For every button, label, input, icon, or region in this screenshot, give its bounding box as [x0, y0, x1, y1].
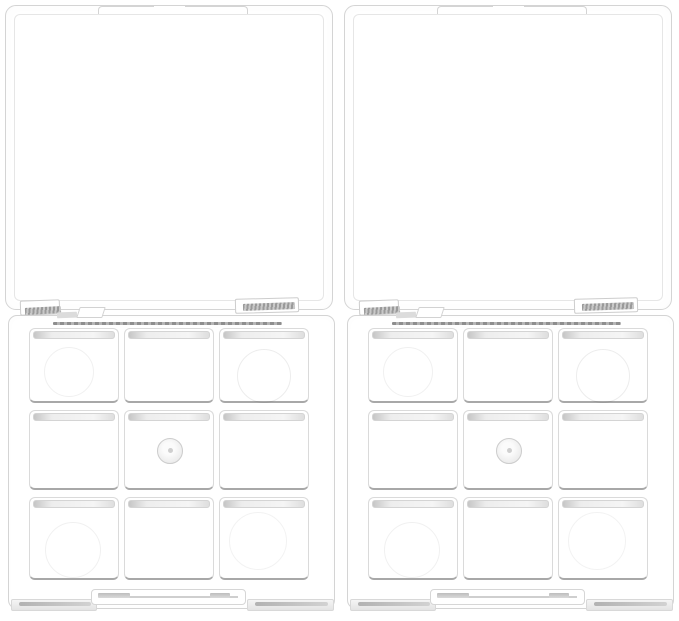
lid-hinge-tab [98, 6, 248, 14]
palette-base [347, 315, 674, 609]
compartment-r3c2 [463, 497, 553, 580]
round-well-impression [45, 522, 101, 578]
round-well-impression [237, 349, 291, 403]
compartment-r2c2 [124, 410, 214, 490]
latch-grip-segment [549, 593, 569, 598]
product-photo-canvas [0, 0, 679, 621]
compartment-r1c1 [29, 328, 119, 403]
round-well-impression [44, 347, 94, 397]
compartment-r3c1 [29, 497, 119, 580]
bottom-edge-right [247, 599, 334, 611]
front-latch-tab [430, 589, 585, 605]
compartment-grid [368, 328, 648, 580]
lid-tab-notch [154, 6, 185, 9]
compartment-grid [29, 328, 309, 580]
hinge-stop-tab [415, 307, 445, 318]
compartment-r3c3 [219, 497, 309, 580]
hinge-rod-line [53, 322, 282, 325]
hinge-stop-tab [76, 307, 106, 318]
round-well-impression [383, 347, 433, 397]
compartment-r3c2 [124, 497, 214, 580]
compartment-r1c3 [558, 328, 648, 403]
hinge-mid-piece [396, 312, 416, 319]
compartment-r1c3 [219, 328, 309, 403]
compartment-r1c2 [463, 328, 553, 403]
lid-inner-panel [353, 14, 663, 301]
lid-inner-panel [14, 14, 324, 301]
latch-grip-segment [98, 593, 130, 598]
lid-tab-notch [493, 6, 524, 9]
hinge-rod-line [392, 322, 621, 325]
palette-base [8, 315, 335, 609]
latch-grip-segment [210, 593, 230, 598]
compartment-r3c3 [558, 497, 648, 580]
compartment-r2c1 [368, 410, 458, 490]
bottom-edge-right [586, 599, 673, 611]
round-well-impression [568, 512, 626, 570]
latch-grip-segment [437, 593, 469, 598]
hinge-mid-piece [57, 312, 77, 319]
center-pivot-dot [496, 438, 522, 464]
round-well-impression [229, 512, 287, 570]
compartment-r2c2 [463, 410, 553, 490]
compartment-r2c1 [29, 410, 119, 490]
center-pivot-dot [157, 438, 183, 464]
round-well-impression [384, 522, 440, 578]
front-latch-tab [91, 589, 246, 605]
compartment-r1c1 [368, 328, 458, 403]
palette-right [344, 0, 675, 621]
lid-hinge-tab [437, 6, 587, 14]
compartment-r2c3 [219, 410, 309, 490]
compartment-r1c2 [124, 328, 214, 403]
round-well-impression [576, 349, 630, 403]
bottom-edge-left [350, 599, 436, 611]
palette-lid [344, 5, 672, 310]
palette-lid [5, 5, 333, 310]
palette-left [5, 0, 336, 621]
compartment-r3c1 [368, 497, 458, 580]
compartment-r2c3 [558, 410, 648, 490]
bottom-edge-left [11, 599, 97, 611]
